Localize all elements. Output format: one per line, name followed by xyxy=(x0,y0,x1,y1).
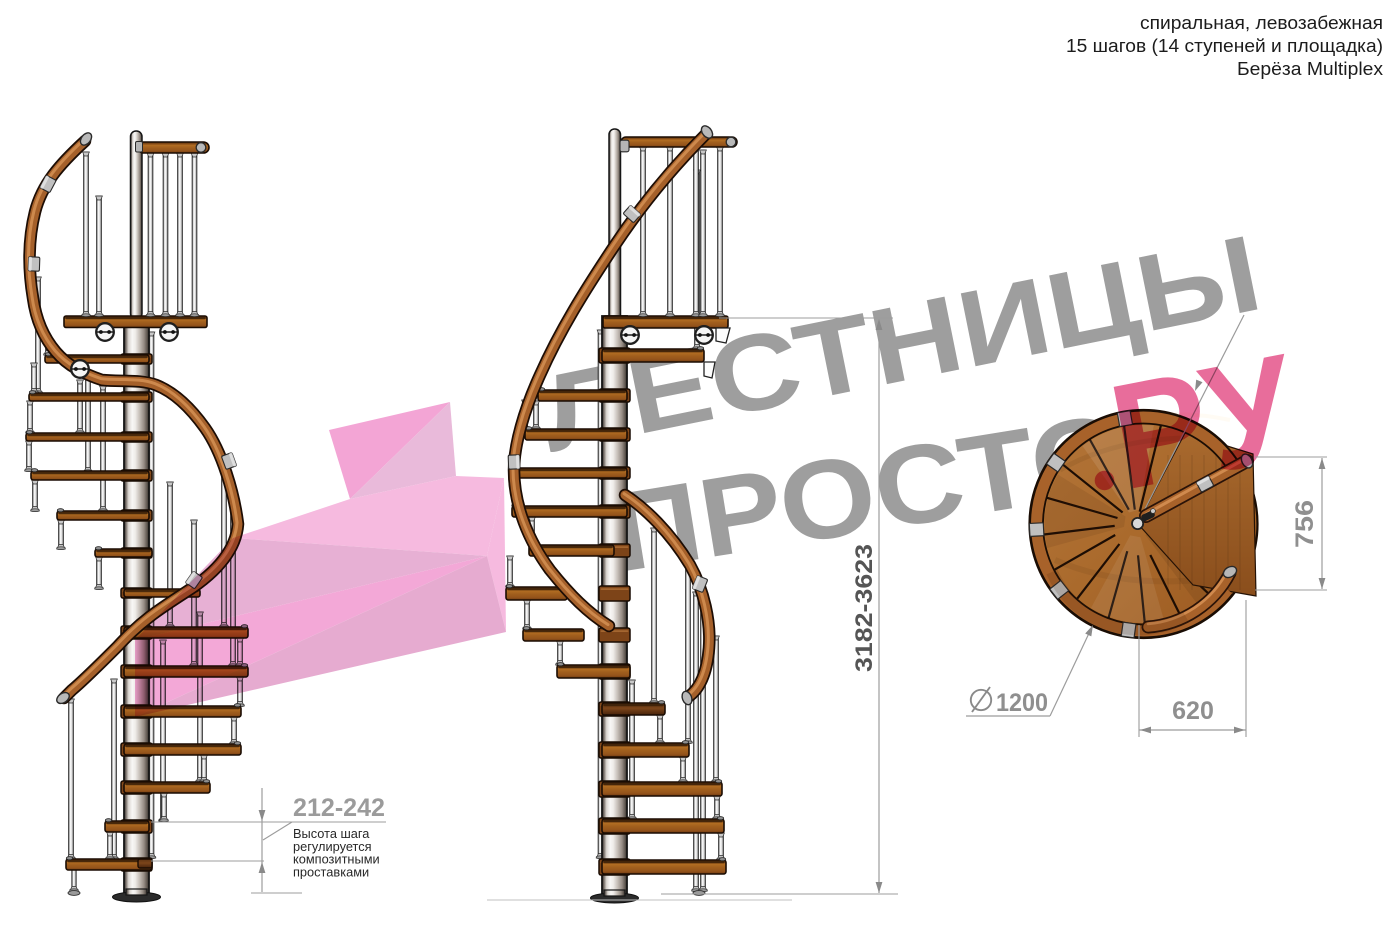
svg-text:проставками: проставками xyxy=(293,864,369,879)
svg-text:спиральная, левозабежная: спиральная, левозабежная xyxy=(1140,12,1383,33)
svg-text:756: 756 xyxy=(1291,500,1319,548)
svg-text:15 шагов (14 ступеней и площад: 15 шагов (14 ступеней и площадка) xyxy=(1066,35,1383,56)
svg-text:РУ: РУ xyxy=(1098,321,1310,521)
svg-text:620: 620 xyxy=(1172,697,1214,725)
svg-text:Берёза Multiplex: Берёза Multiplex xyxy=(1237,58,1384,79)
svg-text:3182-3623: 3182-3623 xyxy=(851,544,878,672)
svg-text:1200: 1200 xyxy=(996,689,1048,717)
svg-text:212-242: 212-242 xyxy=(293,794,385,822)
